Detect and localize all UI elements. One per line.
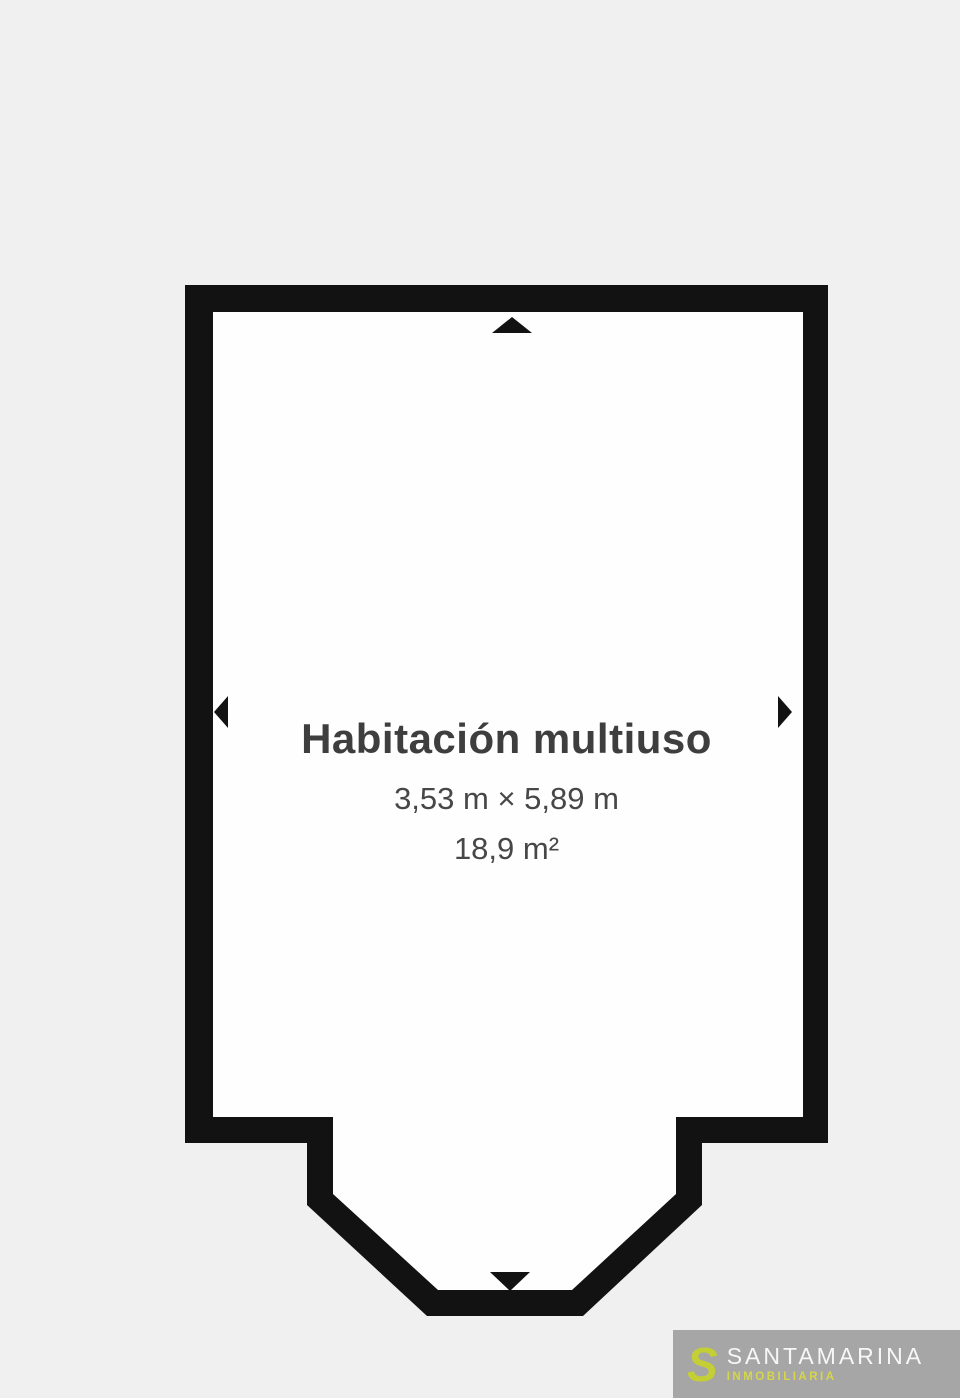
room-title: Habitación multiuso [185,712,828,766]
brand-logo-icon: S [687,1340,718,1388]
floor-plan-canvas: Habitación multiuso 3,53 m × 5,89 m 18,9… [0,0,960,1398]
floor-plan [0,0,960,1398]
room-dimensions: 3,53 m × 5,89 m [185,776,828,822]
watermark: S SANTAMARINA INMOBILIARIA [673,1330,960,1398]
brand-text-stack: SANTAMARINA INMOBILIARIA [727,1344,924,1384]
brand-name: SANTAMARINA [727,1344,924,1369]
brand-tagline: INMOBILIARIA [727,1370,924,1384]
room-label: Habitación multiuso 3,53 m × 5,89 m 18,9… [185,712,828,872]
room-area: 18,9 m² [185,826,828,872]
